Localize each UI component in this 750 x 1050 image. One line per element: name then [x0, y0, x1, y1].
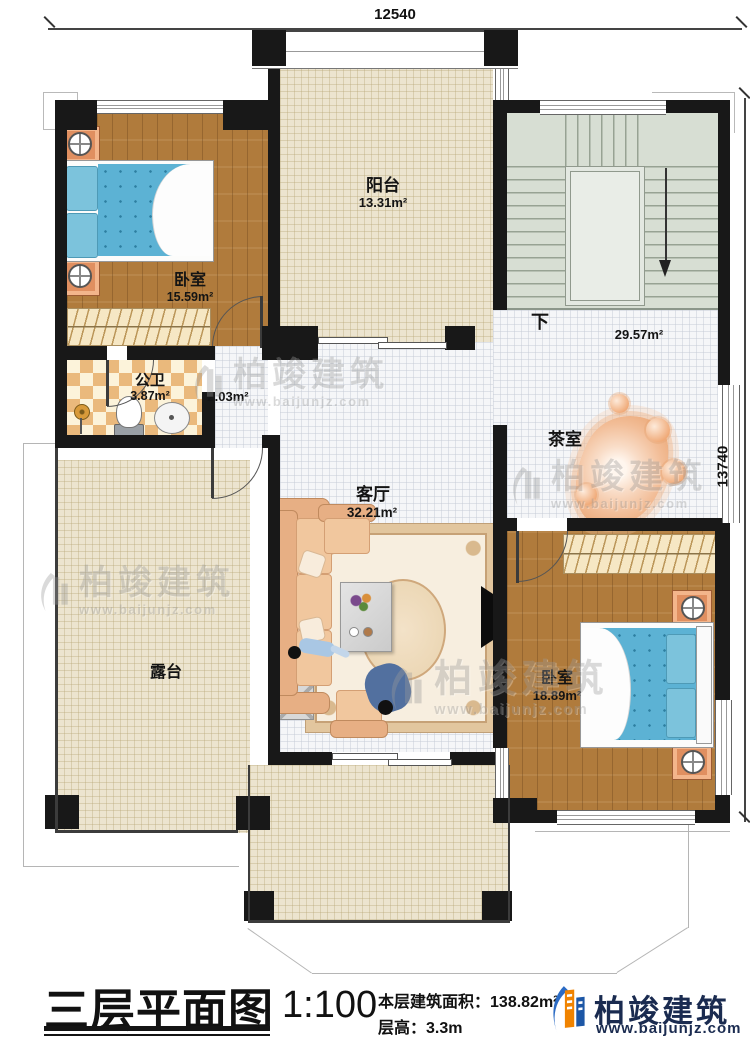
floor-height-label: 层高：	[378, 1020, 426, 1037]
door-arc	[212, 448, 263, 499]
lamp-icon	[68, 264, 92, 288]
wall-segment	[493, 518, 517, 531]
room-area-bedroom2: 18.89m²	[514, 689, 600, 704]
floor-height-value: 3.3m	[426, 1020, 462, 1037]
roof-line-diagonal	[617, 927, 688, 973]
building-area-row: 本层建筑面积：138.82m²	[378, 988, 559, 1012]
wall-segment	[567, 518, 730, 531]
lower-terrace-floor	[250, 765, 510, 923]
pillow	[66, 166, 98, 211]
room-label-bedroom1: 卧室	[150, 272, 230, 290]
wall-segment	[493, 798, 537, 823]
wall-segment	[695, 810, 730, 823]
table-cup	[363, 627, 373, 637]
balcony-railing	[252, 30, 518, 69]
room-area-balcony: 13.31m²	[328, 196, 438, 211]
stair-arrow-down-icon	[659, 260, 671, 277]
person-head	[378, 700, 393, 715]
stair-well	[565, 166, 645, 306]
wall-segment	[262, 435, 280, 448]
stair-well-inner	[570, 171, 640, 301]
plant-stem	[80, 418, 82, 434]
armchair-back	[330, 720, 388, 738]
building-area-label: 本层建筑面积：	[378, 994, 490, 1011]
room-area-bedroom1: 15.59m²	[145, 290, 235, 304]
window	[540, 100, 666, 115]
nightstand	[672, 744, 712, 780]
room-label-bathroom: 公卫	[118, 372, 182, 389]
lamp-icon	[68, 132, 92, 156]
roof-line	[23, 443, 57, 444]
wall-segment	[493, 425, 507, 531]
wall-segment	[445, 326, 475, 350]
room-area-living: 32.21m²	[329, 505, 415, 521]
floor-plan-page: 阳台 13.31m² 卧室 15.59m² 下 29.57m² 公卫 3.87m…	[0, 0, 750, 1050]
nightstand	[672, 590, 712, 626]
lamp-icon	[681, 750, 705, 774]
door-leaf	[516, 531, 519, 583]
stair-flight-top	[565, 113, 643, 170]
wall-segment	[535, 810, 557, 823]
column	[484, 28, 518, 66]
dimension-line-right	[744, 98, 746, 822]
tea-stool	[610, 394, 629, 413]
door-leaf	[106, 360, 109, 406]
sink	[154, 402, 190, 434]
terrace-railing	[248, 765, 250, 923]
wall-segment	[55, 435, 215, 448]
room-label-terrace: 露台	[136, 664, 196, 682]
dimension-top-value: 12540	[315, 6, 475, 23]
wall-segment	[268, 33, 280, 328]
column	[236, 796, 270, 830]
wall-segment	[268, 752, 332, 765]
wall-segment	[493, 531, 507, 748]
roof-line	[688, 823, 689, 928]
window	[495, 748, 509, 798]
roof-line	[535, 831, 730, 832]
window	[715, 700, 732, 795]
terrace-railing	[248, 920, 510, 923]
room-label-bedroom2: 卧室	[522, 670, 592, 688]
terrace-railing	[55, 830, 238, 833]
stair-direction-line	[665, 168, 667, 262]
wall-segment	[55, 346, 107, 360]
plan-scale: 1:100	[282, 984, 377, 1027]
person-head	[288, 646, 301, 659]
dimension-line-top	[48, 28, 742, 30]
lamp-icon	[681, 596, 705, 620]
window	[97, 100, 223, 114]
wall-segment	[493, 100, 507, 310]
room-label-balcony: 阳台	[328, 176, 438, 196]
wardrobe	[67, 308, 211, 346]
wardrobe	[563, 534, 717, 574]
dimension-right-value: 13740	[715, 427, 732, 507]
bed-headboard	[696, 626, 712, 744]
stairs-area-label: 29.57m²	[593, 328, 685, 343]
hallway-area-label: 2.03m²	[196, 390, 260, 405]
sliding-door	[388, 759, 452, 766]
room-label-living: 客厅	[338, 485, 408, 505]
wall-segment	[718, 100, 730, 385]
roof-line	[23, 866, 239, 867]
door-leaf	[211, 448, 214, 498]
stair-flight-left	[507, 166, 565, 308]
stair-flight-right	[643, 166, 718, 308]
wall-segment	[493, 100, 540, 113]
floor-height-row: 层高：3.3m	[378, 1014, 462, 1038]
table-cup	[349, 627, 359, 637]
room-area-bathroom: 3.87m²	[112, 389, 188, 403]
column	[252, 28, 286, 66]
stair-floor-edge	[507, 308, 718, 310]
wall-segment	[268, 435, 280, 752]
roof-line-diagonal	[247, 928, 311, 974]
plan-title-underline-thin	[44, 1034, 270, 1036]
brand-logo-icon	[546, 982, 590, 1038]
tea-stool	[576, 484, 597, 505]
room-terrace-floor	[57, 460, 250, 833]
tea-stool	[646, 418, 670, 442]
flower-decor	[347, 591, 377, 615]
sink-drain	[169, 415, 174, 420]
stairs-down-label: 下	[526, 312, 554, 333]
pillow	[666, 634, 696, 684]
dimension-tick	[43, 16, 55, 28]
terrace-railing	[55, 448, 58, 833]
roof-line	[23, 443, 24, 867]
roof-line	[312, 973, 617, 974]
brand-site: www.baijunjz.com	[596, 1020, 741, 1037]
window	[557, 810, 695, 825]
room-label-tearoom: 茶室	[532, 430, 598, 450]
wall-segment	[715, 523, 730, 703]
sliding-door	[378, 342, 447, 349]
plant-icon	[74, 404, 90, 420]
plan-title-underline	[44, 1026, 270, 1031]
wall-segment	[262, 326, 318, 360]
tea-stool	[662, 460, 686, 484]
armchair-seat	[324, 518, 370, 554]
pillow	[666, 688, 696, 738]
coffee-table	[340, 582, 392, 652]
wall-segment	[127, 346, 215, 360]
column	[45, 795, 79, 829]
pillow	[66, 213, 98, 258]
dimension-tick	[735, 16, 747, 28]
wall-segment	[55, 100, 67, 448]
